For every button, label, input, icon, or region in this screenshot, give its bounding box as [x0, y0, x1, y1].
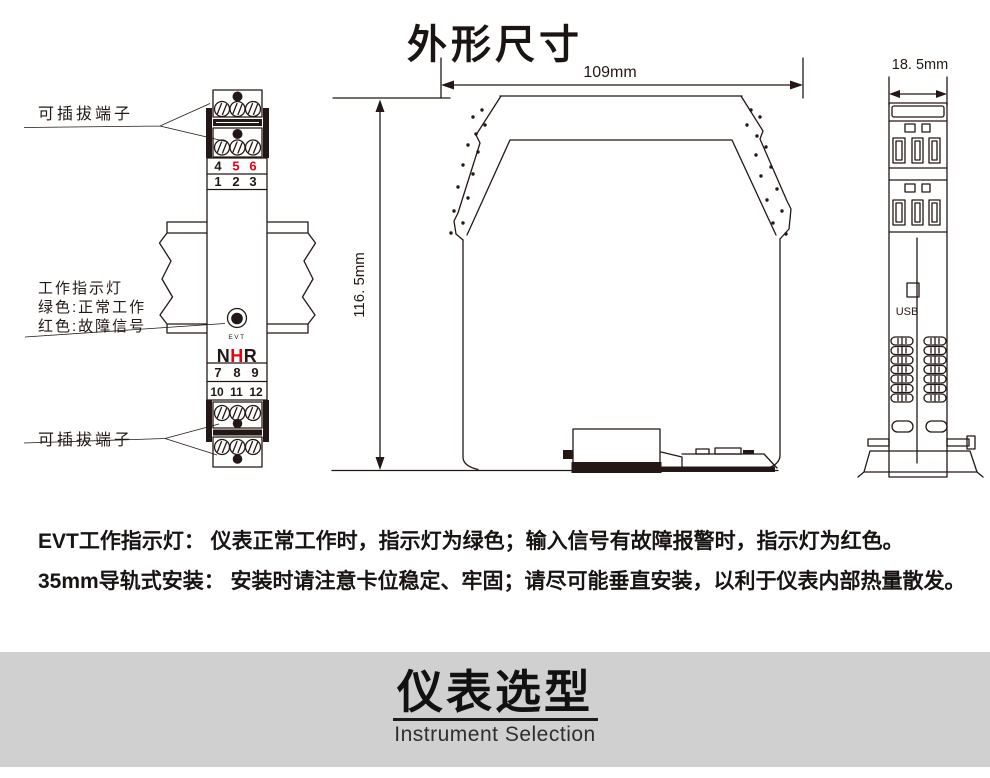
vent-slots: [891, 337, 947, 432]
width-dimension: 109mm: [441, 58, 803, 98]
banner-title-underline: [393, 718, 598, 721]
banner-title: 仪表选型: [0, 666, 990, 718]
indicator-label: 工作指示灯 绿色:正常工作 红色:故障信号: [25, 280, 225, 337]
led-dot: [231, 313, 243, 325]
screw-icon: [215, 406, 230, 421]
note-rail-mounting: 35mm导轨式安装： 安装时请注意卡位稳定、牢固；请尽可能垂直安装，以利于仪表内…: [38, 562, 968, 602]
svg-text:10: 10: [210, 385, 224, 399]
banner-subtitle: Instrument Selection: [0, 723, 990, 747]
svg-text:1: 1: [214, 174, 221, 189]
note-evt-indicator: EVT工作指示灯： 仪表正常工作时，指示灯为绿色；输入信号有故障报警时，指示灯为…: [38, 522, 968, 562]
terminal-numbers-bottom: 7 8 9 10 11 12: [207, 363, 267, 400]
svg-text:9: 9: [251, 365, 258, 380]
dim-end-width-label: 18. 5mm: [892, 57, 948, 73]
section-banner: 仪表选型 Instrument Selection: [0, 652, 990, 767]
screw-icon: [246, 140, 261, 155]
notes-block: EVT工作指示灯： 仪表正常工作时，指示灯为绿色；输入信号有故障报警时，指示灯为…: [38, 522, 968, 602]
manual-page: 外形尺寸 可插拔端子 4 5: [0, 0, 990, 778]
svg-text:4: 4: [214, 159, 222, 174]
rail-clip: [563, 429, 777, 473]
front-view-drawing: 可插拔端子 4 5 6 1 2 3: [20, 82, 330, 482]
svg-text:绿色:正常工作: 绿色:正常工作: [38, 299, 146, 316]
svg-text:5: 5: [232, 159, 239, 174]
screw-icon: [246, 406, 261, 421]
screw-icon: [230, 102, 245, 117]
end-view-drawing: 18. 5mm USB: [856, 53, 988, 483]
svg-text:2: 2: [232, 174, 239, 189]
screw-icon: [215, 102, 230, 117]
svg-text:12: 12: [249, 385, 263, 399]
side-view-drawing: 109mm 116. 5mm: [330, 53, 820, 478]
svg-text:工作指示灯: 工作指示灯: [38, 280, 123, 297]
module-details: USB: [889, 106, 947, 463]
svg-text:8: 8: [233, 365, 240, 380]
svg-text:3: 3: [249, 174, 256, 189]
pluggable-terminal-label-top: 可插拔端子: [38, 105, 133, 123]
screw-icon: [230, 140, 245, 155]
dim-width-label: 109mm: [583, 64, 636, 81]
screw-icon: [230, 406, 245, 421]
led-label: EVT: [228, 334, 245, 341]
dim-height-label: 116. 5mm: [351, 252, 368, 318]
screw-icon: [246, 102, 261, 117]
svg-text:11: 11: [230, 385, 243, 399]
svg-text:7: 7: [214, 365, 221, 380]
screw-icon: [215, 440, 230, 455]
height-dimension: 116. 5mm: [333, 98, 450, 470]
din-rail-section: [858, 436, 983, 477]
stipple-texture: [449, 108, 787, 235]
terminal-block-bottom: [206, 400, 269, 467]
svg-text:6: 6: [249, 159, 256, 174]
terminal-numbers-top: 4 5 6 1 2 3: [207, 158, 267, 190]
usb-label: USB: [896, 306, 919, 318]
screw-icon: [246, 440, 261, 455]
screw-icon: [230, 440, 245, 455]
screw-icon: [215, 140, 230, 155]
end-width-dimension: 18. 5mm: [889, 57, 948, 105]
terminal-block-top: [206, 90, 269, 158]
module-profile: [454, 96, 791, 470]
